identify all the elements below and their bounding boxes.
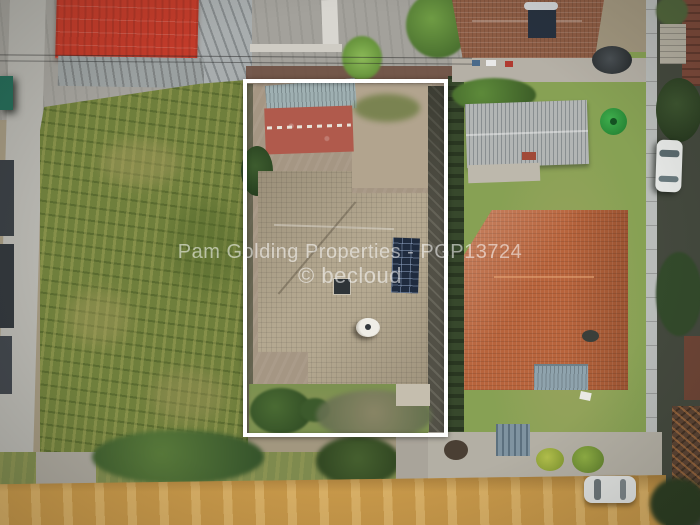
watermark-line1: Pam Golding Properties - PGP13724: [0, 241, 700, 264]
aerial-photo: Pam Golding Properties - PGP13724 © becl…: [0, 0, 700, 525]
watermark-line2: © becloud: [0, 263, 700, 289]
